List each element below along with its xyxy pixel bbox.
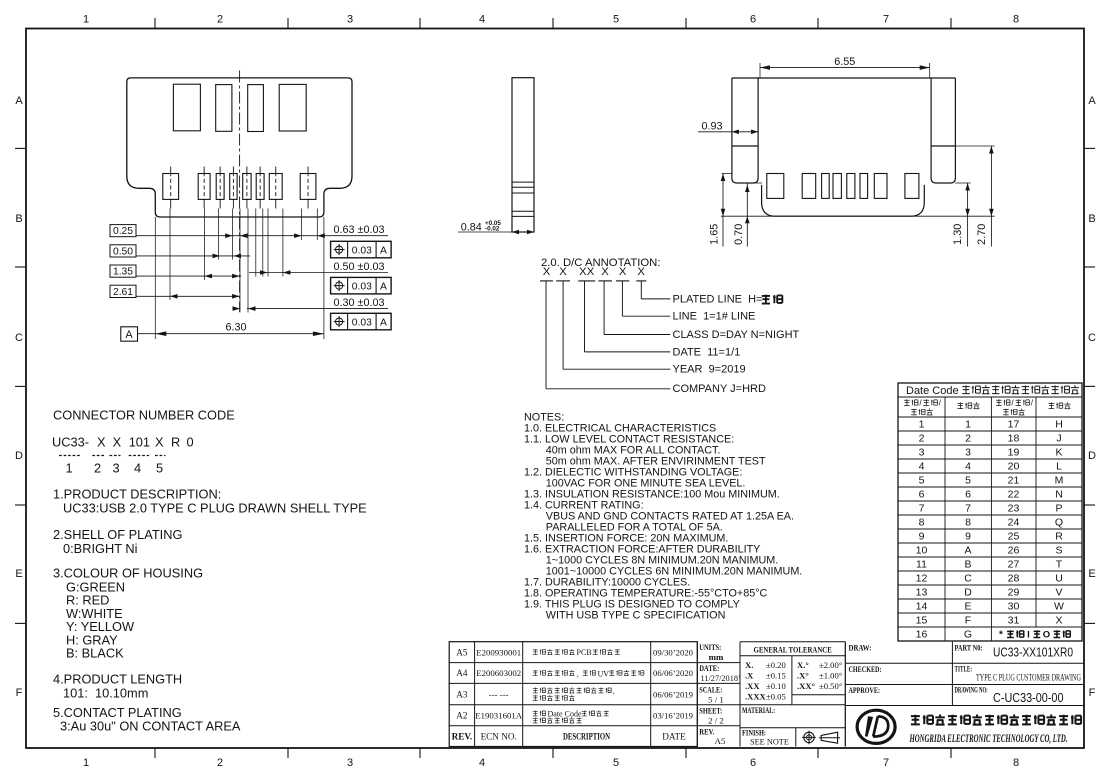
- svg-text:TITLE:: TITLE:: [955, 664, 973, 674]
- svg-text:GENERAL TOLERANCE: GENERAL TOLERANCE: [754, 644, 832, 654]
- svg-text:1.65: 1.65: [709, 224, 721, 245]
- svg-text:5: 5: [613, 14, 619, 26]
- svg-text:1.35: 1.35: [113, 267, 133, 278]
- svg-text:,: ,: [613, 687, 615, 696]
- svg-text:O: O: [1043, 629, 1050, 640]
- svg-text:8: 8: [919, 517, 925, 529]
- svg-text:PART N0:: PART N0:: [955, 642, 983, 652]
- svg-text:A5: A5: [456, 647, 468, 657]
- svg-text:REV.: REV.: [452, 731, 473, 741]
- svg-text:X.°: X.°: [797, 660, 809, 670]
- svg-text:*: *: [999, 629, 1003, 640]
- svg-text:A: A: [125, 329, 133, 341]
- svg-text:DATE:: DATE:: [699, 663, 719, 673]
- svg-text:6: 6: [965, 489, 971, 501]
- svg-text:DATE: DATE: [662, 731, 686, 741]
- svg-text:A5: A5: [715, 736, 726, 746]
- svg-text:Date Code: Date Code: [548, 710, 582, 719]
- svg-text:.X: .X: [745, 671, 754, 681]
- svg-text:N: N: [1055, 489, 1063, 501]
- svg-text:101: 10.10mm: 101: 10.10mm: [63, 686, 148, 701]
- svg-text:7: 7: [919, 503, 925, 515]
- svg-text:4: 4: [919, 461, 925, 473]
- svg-text:C-UC33-00-00: C-UC33-00-00: [993, 690, 1064, 705]
- svg-text:APPROVE:: APPROVE:: [849, 685, 881, 695]
- svg-text:±0.50°: ±0.50°: [819, 681, 843, 691]
- svg-text:3:Au 30u" ON CONTACT AREA: 3:Au 30u" ON CONTACT AREA: [60, 719, 241, 734]
- svg-text:0.25: 0.25: [113, 226, 133, 237]
- svg-text:8: 8: [1013, 14, 1019, 26]
- svg-text:3: 3: [347, 14, 353, 26]
- svg-text:0.03: 0.03: [352, 245, 372, 256]
- svg-text:0.03: 0.03: [352, 281, 372, 292]
- svg-text:E: E: [1088, 568, 1095, 580]
- svg-text:M: M: [1055, 475, 1064, 487]
- svg-text:1: 1: [83, 14, 89, 26]
- svg-text:DRAWING NO:: DRAWING NO:: [955, 685, 988, 695]
- svg-text:0.03: 0.03: [352, 317, 372, 328]
- svg-text:A3: A3: [456, 689, 468, 699]
- svg-text:L: L: [1056, 461, 1062, 473]
- svg-text:7: 7: [965, 503, 971, 515]
- svg-text:4: 4: [479, 757, 485, 769]
- svg-text:1: 1: [83, 757, 89, 769]
- svg-text:X.: X.: [745, 660, 753, 670]
- svg-text:2: 2: [965, 433, 971, 445]
- svg-text:-0.02: -0.02: [485, 226, 500, 233]
- svg-text:0:BRIGHT Ni: 0:BRIGHT Ni: [63, 541, 137, 556]
- svg-text:09/30’2020: 09/30’2020: [653, 647, 694, 657]
- svg-text:16: 16: [916, 629, 928, 641]
- svg-text:X: X: [637, 266, 645, 278]
- svg-text:6.55: 6.55: [834, 56, 855, 68]
- svg-text:2: 2: [217, 14, 223, 26]
- svg-text:D: D: [1088, 450, 1096, 462]
- svg-text:1: 1: [965, 419, 971, 431]
- svg-text:3: 3: [919, 447, 925, 459]
- svg-text:C: C: [15, 332, 23, 344]
- svg-text:2 / 2: 2 / 2: [708, 715, 724, 725]
- svg-text:W: W: [1054, 601, 1064, 613]
- svg-text:DATE 11=1/1: DATE 11=1/1: [673, 346, 741, 358]
- svg-text:X: X: [601, 266, 609, 278]
- svg-text:5: 5: [613, 757, 619, 769]
- svg-text:A: A: [964, 545, 971, 557]
- svg-text:PLATED LINE H=: PLATED LINE H=: [673, 293, 763, 305]
- svg-text:T: T: [1056, 559, 1063, 571]
- svg-text:06/06’2019: 06/06’2019: [653, 689, 693, 699]
- svg-text:22: 22: [1008, 489, 1020, 501]
- svg-text:ECN NO.: ECN NO.: [481, 731, 517, 741]
- svg-text:2.70: 2.70: [976, 224, 988, 245]
- svg-text:5: 5: [919, 475, 925, 487]
- svg-text:0.63 ±0.03: 0.63 ±0.03: [334, 224, 385, 236]
- svg-text:WITH USB TYPE C SPECIFICATION: WITH USB TYPE C SPECIFICATION: [546, 610, 726, 622]
- svg-text:3: 3: [347, 757, 353, 769]
- svg-text:13: 13: [916, 587, 928, 599]
- svg-text:±1.00°: ±1.00°: [819, 671, 843, 681]
- svg-text:MATERIAL:: MATERIAL:: [742, 705, 775, 715]
- svg-text:±0.10: ±0.10: [766, 681, 786, 691]
- svg-text:5 / 1: 5 / 1: [708, 694, 724, 704]
- svg-text:Q: Q: [1055, 517, 1063, 529]
- svg-text:±0.15: ±0.15: [766, 671, 786, 681]
- svg-text:A: A: [380, 317, 387, 328]
- svg-text:UC33:USB 2.0 TYPE C PLUG DRAWN: UC33:USB 2.0 TYPE C PLUG DRAWN SHELL TYP…: [63, 501, 367, 516]
- svg-text:15: 15: [916, 615, 928, 627]
- svg-text:10: 10: [916, 545, 928, 557]
- svg-text:19: 19: [1008, 447, 1020, 459]
- svg-text:B: B: [1088, 213, 1095, 225]
- svg-text:1: 1: [919, 419, 925, 431]
- svg-text:0.30 ±0.03: 0.30 ±0.03: [334, 297, 385, 309]
- svg-text:9: 9: [965, 531, 971, 543]
- svg-text:0.93: 0.93: [702, 120, 723, 132]
- svg-text:UC33-XX101XR0: UC33-XX101XR0: [993, 646, 1073, 660]
- svg-text:X: X: [619, 266, 627, 278]
- svg-text:C: C: [964, 573, 972, 585]
- svg-text:.XXX: .XXX: [745, 691, 767, 701]
- svg-text:R: R: [1055, 531, 1063, 543]
- svg-text:.XX°: .XX°: [797, 681, 816, 691]
- svg-text:3.COLOUR OF HOUSING: 3.COLOUR OF HOUSING: [53, 566, 203, 581]
- svg-text:29: 29: [1008, 587, 1020, 599]
- svg-text:PCB: PCB: [577, 648, 592, 657]
- svg-text:21: 21: [1008, 475, 1020, 487]
- svg-text:UV: UV: [598, 669, 610, 678]
- svg-text:I: I: [1027, 629, 1030, 640]
- svg-text:0.50 ±0.03: 0.50 ±0.03: [334, 261, 385, 273]
- svg-text:H: H: [1055, 419, 1063, 431]
- svg-text:B: B: [15, 213, 22, 225]
- svg-text:5: 5: [965, 475, 971, 487]
- svg-text:8: 8: [965, 517, 971, 529]
- svg-text:CLASS D=DAY N=NIGHT: CLASS D=DAY N=NIGHT: [673, 329, 800, 341]
- svg-text:B: B: [964, 559, 971, 571]
- svg-text:--- ---: --- ---: [489, 689, 509, 699]
- svg-text:±2.00°: ±2.00°: [819, 660, 843, 670]
- svg-text:B: BLACK: B: BLACK: [66, 646, 124, 661]
- svg-text:A: A: [380, 245, 387, 256]
- svg-text:HONGRIDA ELECTRONIC TECHNOLOGY: HONGRIDA ELECTRONIC TECHNOLOGY CO, LTD.: [909, 733, 1068, 745]
- svg-text:F: F: [16, 687, 23, 699]
- svg-text:P: P: [1055, 503, 1062, 515]
- svg-text:U: U: [1055, 573, 1063, 585]
- svg-text:.XX: .XX: [745, 681, 760, 691]
- svg-text:24: 24: [1008, 517, 1020, 529]
- svg-text:J: J: [1056, 433, 1061, 445]
- svg-text:4: 4: [479, 14, 485, 26]
- svg-text:DRAW:: DRAW:: [849, 643, 872, 653]
- svg-text:,: ,: [577, 669, 579, 678]
- svg-text:9: 9: [919, 531, 925, 543]
- svg-text:.X°: .X°: [797, 671, 809, 681]
- svg-text:SEE NOTE: SEE NOTE: [750, 738, 789, 747]
- svg-text:20: 20: [1008, 461, 1020, 473]
- svg-text:18: 18: [1008, 433, 1020, 445]
- svg-text:06/06’2020: 06/06’2020: [653, 668, 694, 678]
- svg-text:6: 6: [750, 14, 756, 26]
- svg-text:E: E: [15, 568, 22, 580]
- svg-text:LINE 1=1# LINE: LINE 1=1# LINE: [673, 311, 756, 323]
- svg-text:A4: A4: [456, 668, 468, 678]
- svg-text:6.30: 6.30: [225, 322, 246, 334]
- svg-text:2: 2: [217, 757, 223, 769]
- svg-text:G: G: [964, 629, 972, 641]
- svg-text:XX: XX: [579, 266, 595, 278]
- svg-text:11/27/2018’: 11/27/2018’: [701, 674, 741, 683]
- svg-text:±0.05: ±0.05: [766, 691, 786, 701]
- svg-text:31: 31: [1008, 615, 1020, 627]
- svg-text:UNITS:: UNITS:: [699, 642, 721, 652]
- svg-text:28: 28: [1008, 573, 1020, 585]
- svg-text:4.PRODUCT LENGTH: 4.PRODUCT LENGTH: [53, 672, 182, 687]
- svg-text:2.SHELL OF PLATING: 2.SHELL OF PLATING: [53, 527, 182, 542]
- svg-text:K: K: [1055, 447, 1062, 459]
- svg-text:X: X: [559, 266, 567, 278]
- svg-text:0.84: 0.84: [461, 222, 482, 234]
- svg-text:S: S: [1055, 545, 1062, 557]
- svg-text:YEAR 9=2019: YEAR 9=2019: [673, 364, 746, 376]
- svg-text:17: 17: [1008, 419, 1020, 431]
- svg-text:11: 11: [916, 559, 927, 571]
- svg-text:A: A: [380, 281, 387, 292]
- svg-text:SHEET:: SHEET:: [699, 705, 722, 715]
- svg-text:27: 27: [1008, 559, 1020, 571]
- svg-text:E200603002: E200603002: [476, 668, 521, 678]
- svg-text:0.70: 0.70: [733, 224, 745, 245]
- svg-text:SCALE:: SCALE:: [699, 684, 722, 694]
- svg-text:E200930001: E200930001: [476, 647, 521, 657]
- svg-text:2: 2: [919, 433, 925, 445]
- svg-text:±0.20: ±0.20: [766, 660, 786, 670]
- svg-text:REV.: REV.: [699, 726, 714, 736]
- svg-text:COMPANY J=HRD: COMPANY J=HRD: [673, 383, 766, 395]
- svg-text:1.30: 1.30: [952, 224, 964, 245]
- svg-text:6: 6: [750, 757, 756, 769]
- svg-text:FINISH:: FINISH:: [742, 728, 766, 738]
- svg-text:F: F: [965, 615, 971, 627]
- svg-text:A: A: [1088, 95, 1096, 107]
- svg-text:6: 6: [919, 489, 925, 501]
- svg-text:1.PRODUCT DESCRIPTION:: 1.PRODUCT DESCRIPTION:: [53, 487, 221, 502]
- svg-text:7: 7: [883, 757, 889, 769]
- svg-text:X: X: [543, 266, 551, 278]
- svg-text:03/16’2019: 03/16’2019: [653, 711, 693, 721]
- svg-text:CHECKED:: CHECKED:: [849, 664, 882, 674]
- svg-text:D: D: [964, 587, 972, 599]
- svg-text:Date Code: Date Code: [906, 385, 959, 397]
- svg-text:3: 3: [965, 447, 971, 459]
- svg-text:C: C: [1088, 332, 1096, 344]
- svg-text:F: F: [1089, 687, 1096, 699]
- svg-text:2.61: 2.61: [113, 287, 133, 298]
- svg-text:7: 7: [883, 14, 889, 26]
- svg-text:X: X: [1055, 615, 1062, 627]
- svg-text:4: 4: [965, 461, 971, 473]
- svg-text:mm: mm: [709, 652, 724, 662]
- svg-text:D: D: [15, 450, 23, 462]
- svg-text:A2: A2: [456, 711, 468, 721]
- svg-text:25: 25: [1008, 531, 1020, 543]
- svg-text:23: 23: [1008, 503, 1020, 515]
- svg-text:DESCRIPTION: DESCRIPTION: [563, 731, 610, 741]
- svg-text:A: A: [15, 95, 23, 107]
- svg-text:8: 8: [1013, 757, 1019, 769]
- svg-text:E: E: [964, 601, 971, 613]
- svg-text:26: 26: [1008, 545, 1020, 557]
- svg-text:14: 14: [916, 601, 928, 613]
- svg-text:30: 30: [1008, 601, 1020, 613]
- svg-text:CONNECTOR NUMBER CODE: CONNECTOR NUMBER CODE: [53, 407, 235, 422]
- svg-text:E19031601A: E19031601A: [475, 711, 523, 721]
- svg-text:TYPE C PLUG CUSTOMER DRAWING: TYPE C PLUG CUSTOMER DRAWING: [976, 674, 1081, 684]
- svg-text:V: V: [1055, 587, 1062, 599]
- svg-text:12: 12: [916, 573, 928, 585]
- svg-text:0.50: 0.50: [113, 246, 133, 257]
